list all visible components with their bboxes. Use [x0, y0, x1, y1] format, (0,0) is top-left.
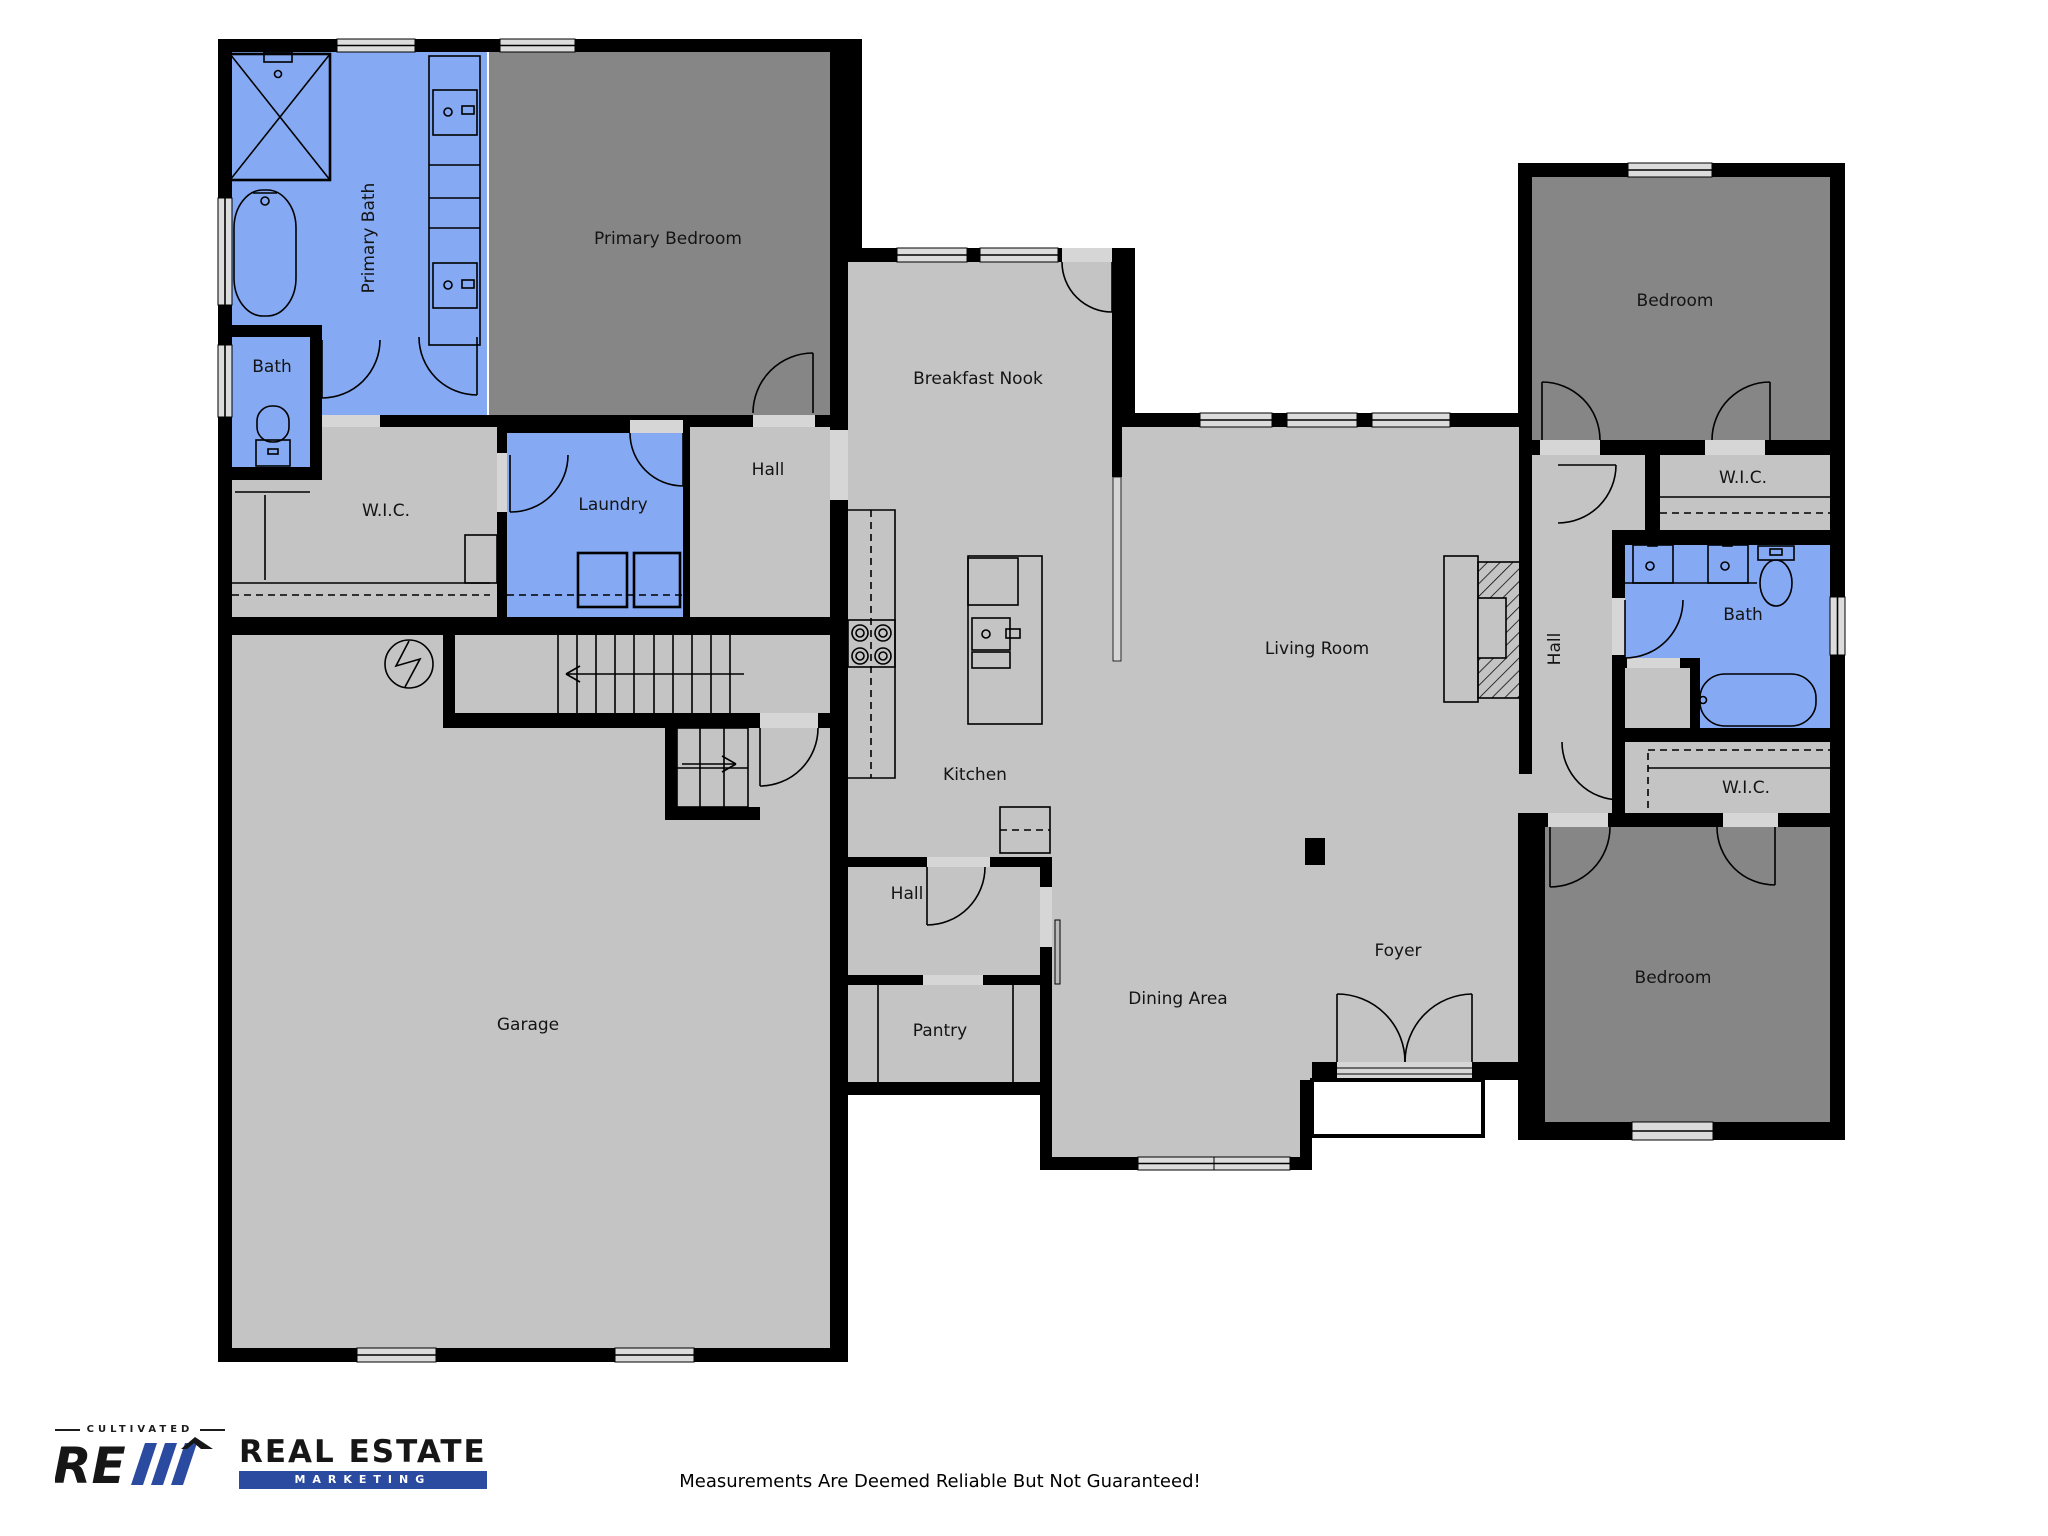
- room-label-hall-right: Hall: [1545, 633, 1565, 666]
- room-label-wic-bottom-right: W.I.C.: [1722, 778, 1770, 798]
- floor-plan-page: Primary Bath Primary Bedroom Bath W.I.C.…: [0, 0, 2048, 1536]
- room-label-bedroom-bottom: Bedroom: [1635, 968, 1712, 988]
- room-label-foyer: Foyer: [1374, 941, 1421, 961]
- open-door-leaf: [1055, 920, 1060, 984]
- brand-logo-text-block: REAL ESTATE MARKETING: [239, 1437, 487, 1489]
- brand-cultivated: CULTIVATED: [55, 1424, 225, 1435]
- room-label-wic-top-right: W.I.C.: [1719, 468, 1767, 488]
- floor-plan-canvas: Primary Bath Primary Bedroom Bath W.I.C.…: [0, 0, 2048, 1536]
- brand-logo: CULTIVATED RE REAL ESTATE MARKETING: [55, 1424, 487, 1489]
- brand-real-estate: REAL ESTATE: [239, 1437, 487, 1468]
- room-label-kitchen: Kitchen: [943, 765, 1007, 785]
- svg-text:RE: RE: [55, 1437, 126, 1489]
- room-label-bath-right: Bath: [1723, 605, 1763, 625]
- room-label-living-room: Living Room: [1265, 639, 1369, 659]
- brand-logo-mark-block: CULTIVATED RE: [55, 1424, 225, 1489]
- disclaimer-text: Measurements Are Deemed Reliable But Not…: [660, 1471, 1220, 1492]
- entry-stoop: [1312, 1080, 1483, 1136]
- room-label-garage: Garage: [497, 1015, 559, 1035]
- room-label-primary-bedroom: Primary Bedroom: [594, 229, 742, 249]
- room-label-bedroom-top: Bedroom: [1637, 291, 1714, 311]
- room-label-breakfast-nook: Breakfast Nook: [913, 369, 1043, 389]
- room-label-hall-upper: Hall: [752, 460, 785, 480]
- brand-cultivated-text: CULTIVATED: [87, 1424, 194, 1435]
- dash-left: [55, 1429, 80, 1431]
- dash-right: [200, 1429, 225, 1431]
- room-label-primary-bath: Primary Bath: [359, 183, 379, 294]
- room-label-laundry: Laundry: [578, 495, 647, 515]
- fireplace-icon: [1444, 556, 1520, 702]
- brand-marketing: MARKETING: [239, 1471, 487, 1489]
- room-label-bath-left: Bath: [252, 357, 292, 377]
- brand-re-mark-icon: RE: [55, 1435, 225, 1489]
- floor-areas: [232, 52, 1830, 1348]
- room-label-pantry: Pantry: [913, 1021, 967, 1041]
- room-label-hall-lower: Hall: [891, 884, 924, 904]
- room-label-wic-left: W.I.C.: [362, 501, 410, 521]
- room-label-dining: Dining Area: [1128, 989, 1227, 1009]
- support-column: [1305, 838, 1325, 865]
